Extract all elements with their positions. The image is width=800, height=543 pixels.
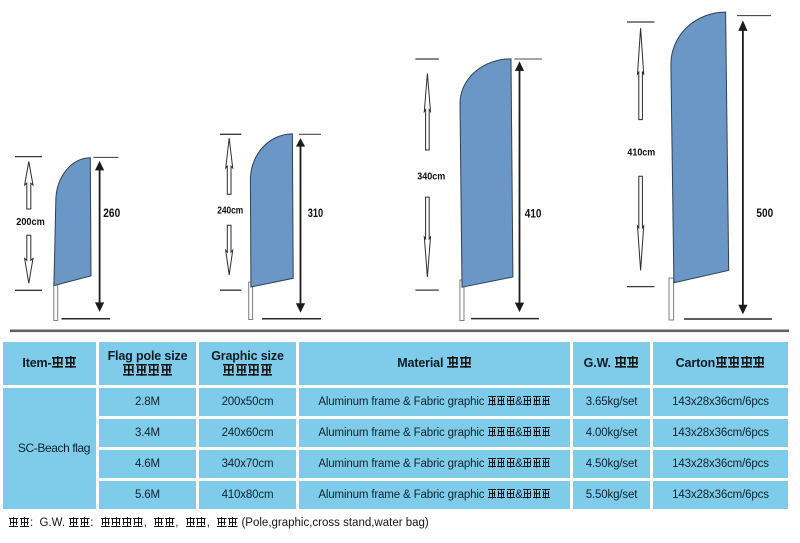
svg-text:260: 260: [103, 207, 120, 220]
svg-text:410: 410: [525, 208, 542, 221]
svg-text:410cm: 410cm: [627, 147, 655, 158]
svg-text:340cm: 340cm: [417, 171, 445, 182]
svg-text:310: 310: [308, 207, 323, 220]
svg-text:240cm: 240cm: [217, 206, 243, 217]
svg-text:500: 500: [756, 207, 773, 220]
svg-text:200cm: 200cm: [16, 217, 45, 228]
